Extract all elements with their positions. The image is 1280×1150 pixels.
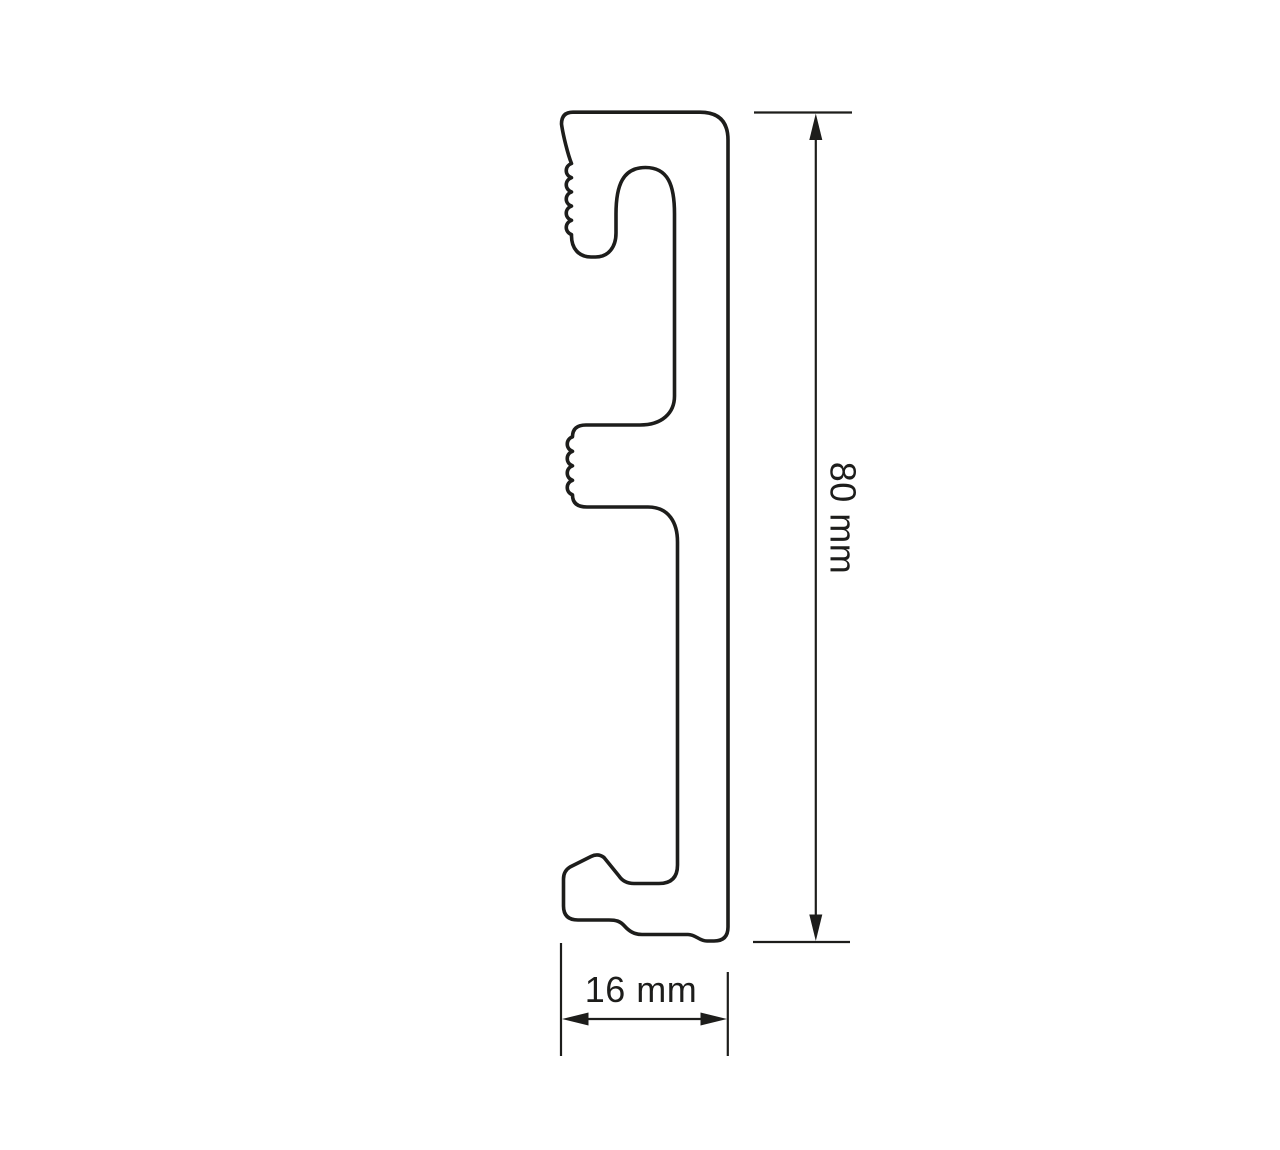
- height-dimension-label: 80 mm: [823, 462, 864, 575]
- arrow-down-icon: [809, 915, 822, 942]
- width-dimension: 16 mm: [561, 943, 728, 1056]
- arrow-left-icon: [562, 1013, 589, 1026]
- technical-drawing: 80 mm 16 mm: [0, 0, 1280, 1150]
- arrow-right-icon: [701, 1013, 728, 1026]
- height-dimension: 80 mm: [753, 113, 864, 943]
- diagram-canvas: 80 mm 16 mm: [0, 0, 1280, 1150]
- width-dimension-label: 16 mm: [585, 969, 698, 1010]
- skirting-profile-outline: [562, 112, 729, 941]
- arrow-up-icon: [809, 114, 822, 141]
